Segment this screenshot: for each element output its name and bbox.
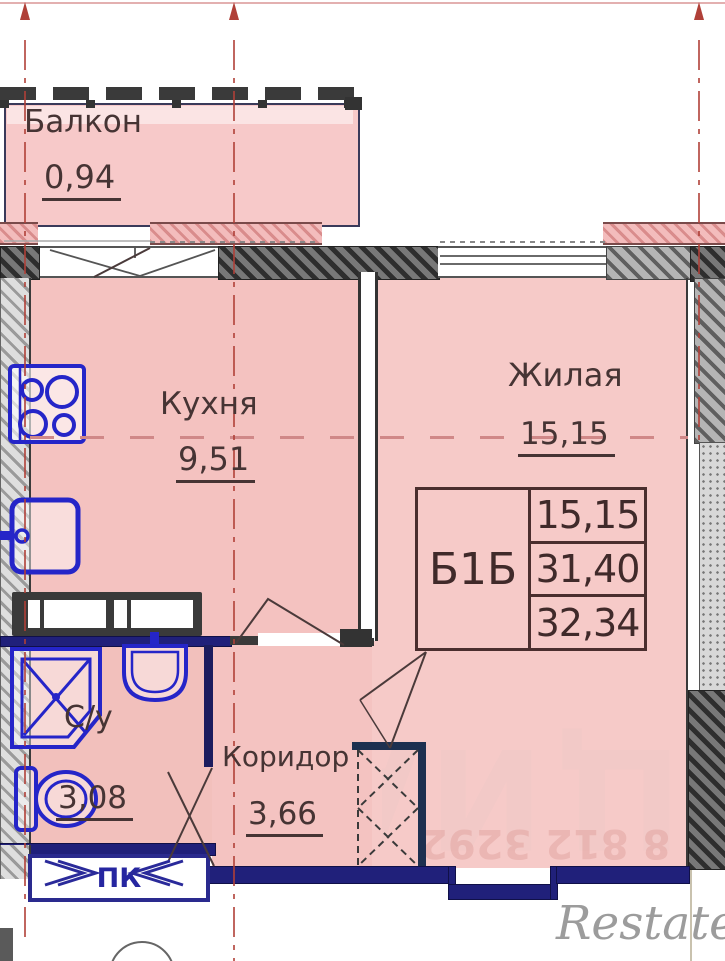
balcony-railing: [0, 87, 361, 100]
right-exterior-wall-middle: [699, 442, 725, 692]
bottom-wall: [556, 866, 690, 884]
partition-kitchen-living: [358, 272, 378, 641]
kitchen-corridor-wall: [230, 636, 258, 645]
kitchen-area: 9,51: [176, 440, 255, 483]
wall-segment: [690, 246, 725, 282]
counter-panel: [131, 600, 193, 628]
exterior-wall-band: [603, 222, 725, 245]
wall-segment: [218, 246, 440, 280]
bathroom-right-wall: [204, 645, 213, 767]
right-gray-line: [690, 870, 692, 961]
right-exterior-wall-lower: [688, 690, 725, 870]
living-window: [438, 246, 606, 278]
living-area: 15,15: [518, 416, 615, 457]
balcony-area: 0,94: [42, 158, 121, 201]
kitchen-counter: [12, 592, 202, 636]
corridor-area: 3,66: [246, 796, 323, 837]
bottom-wall-recess: [448, 884, 558, 900]
table-row-total-area: 32,34: [531, 597, 644, 648]
left-wall-corner: [0, 845, 31, 879]
counter-panel: [114, 600, 127, 628]
floor-plan: ЦИАН 8 812 3292 ПК: [0, 0, 725, 961]
unit-info-table: Б1Б 15,15 31,40 32,34: [415, 487, 647, 651]
wall-segment: [606, 246, 692, 280]
kitchen-label: Кухня: [160, 386, 258, 422]
pk-window-label: ПК: [97, 863, 142, 894]
table-row-living-area: 15,15: [531, 490, 644, 541]
closet-top-wall: [352, 742, 426, 750]
balcony-corner: [345, 97, 362, 110]
wall-segment: [0, 246, 40, 280]
watermark-site: Restate: [556, 896, 725, 951]
corridor-label: Коридор: [222, 740, 349, 773]
counter-panel: [28, 600, 40, 628]
bathroom-area: 3,08: [56, 780, 133, 821]
exterior-wall-band: [150, 222, 322, 245]
axis-bubble: [110, 942, 174, 961]
balcony-label: Балкон: [24, 104, 142, 140]
unit-label: Б1Б: [418, 490, 531, 648]
bottom-left-corner: [0, 928, 13, 961]
exterior-wall-band: [0, 222, 38, 245]
bottom-wall: [196, 866, 450, 884]
pk-window: ПК: [28, 854, 210, 902]
kitchen-balcony-window: [38, 246, 218, 278]
wall-corner: [340, 629, 372, 647]
bathroom-label: С/у: [64, 700, 113, 735]
kitchen-door-opening: [258, 633, 340, 646]
living-label: Жилая: [508, 356, 623, 394]
table-row-area: 31,40: [531, 541, 644, 598]
right-exterior-wall-upper: [694, 278, 725, 444]
top-border-line: [0, 2, 725, 4]
bathroom-top-wall: [0, 636, 232, 647]
water-supply-tick: [0, 531, 12, 540]
left-exterior-wall: [0, 278, 31, 845]
closet-right-wall: [418, 742, 426, 868]
living-right-edge: [686, 278, 688, 870]
counter-panel: [44, 600, 106, 628]
